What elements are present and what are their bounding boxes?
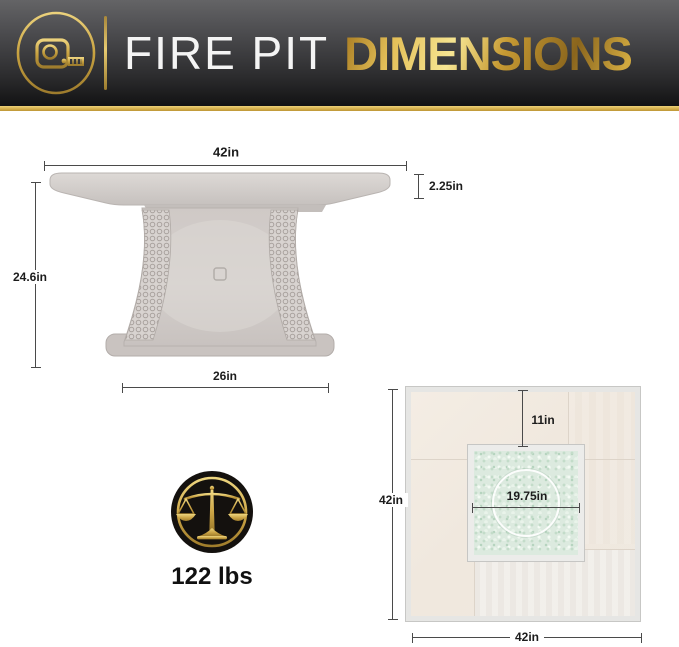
title-light: FIRE PIT <box>124 26 329 80</box>
header-divider <box>104 16 107 90</box>
tape-measure-icon <box>14 10 98 96</box>
gold-accent-strip <box>0 106 679 111</box>
dim-label-topview-height: 42in <box>374 493 408 507</box>
dim-label-height: 24.6in <box>8 270 52 284</box>
title-accent: DIMENSIONS <box>344 26 632 81</box>
dim-label-base-width: 26in <box>213 369 237 383</box>
dim-label-top-width: 42in <box>213 145 239 160</box>
weight-value: 122 lbs <box>171 563 252 591</box>
dim-label-burner-diameter: 19.75in <box>507 489 548 503</box>
fire-pit-top-view-image <box>405 386 641 622</box>
balance-scale-icon <box>170 470 254 554</box>
fire-pit-side-view-image <box>30 172 410 364</box>
dim-line-burner-diameter <box>472 507 580 508</box>
dim-line-base-width <box>122 387 329 388</box>
dim-label-edge-to-insert: 11in <box>531 413 554 427</box>
tile-seam <box>411 459 474 460</box>
dim-label-topview-width: 42in <box>510 630 544 644</box>
dim-label-top-thickness: 2.25in <box>429 179 463 193</box>
header-banner: FIRE PIT DIMENSIONS <box>0 0 679 106</box>
fire-glass-texture <box>474 451 578 555</box>
dim-line-top-thickness <box>418 174 419 199</box>
burner-ring <box>492 469 560 537</box>
fire-glass-insert <box>468 445 584 561</box>
fire-pit-dimensions-infographic: FIRE PIT DIMENSIONS <box>0 0 679 647</box>
page-title: FIRE PIT DIMENSIONS <box>124 0 632 106</box>
dim-line-top-width <box>44 165 407 166</box>
dim-line-edge-to-insert <box>522 390 523 447</box>
